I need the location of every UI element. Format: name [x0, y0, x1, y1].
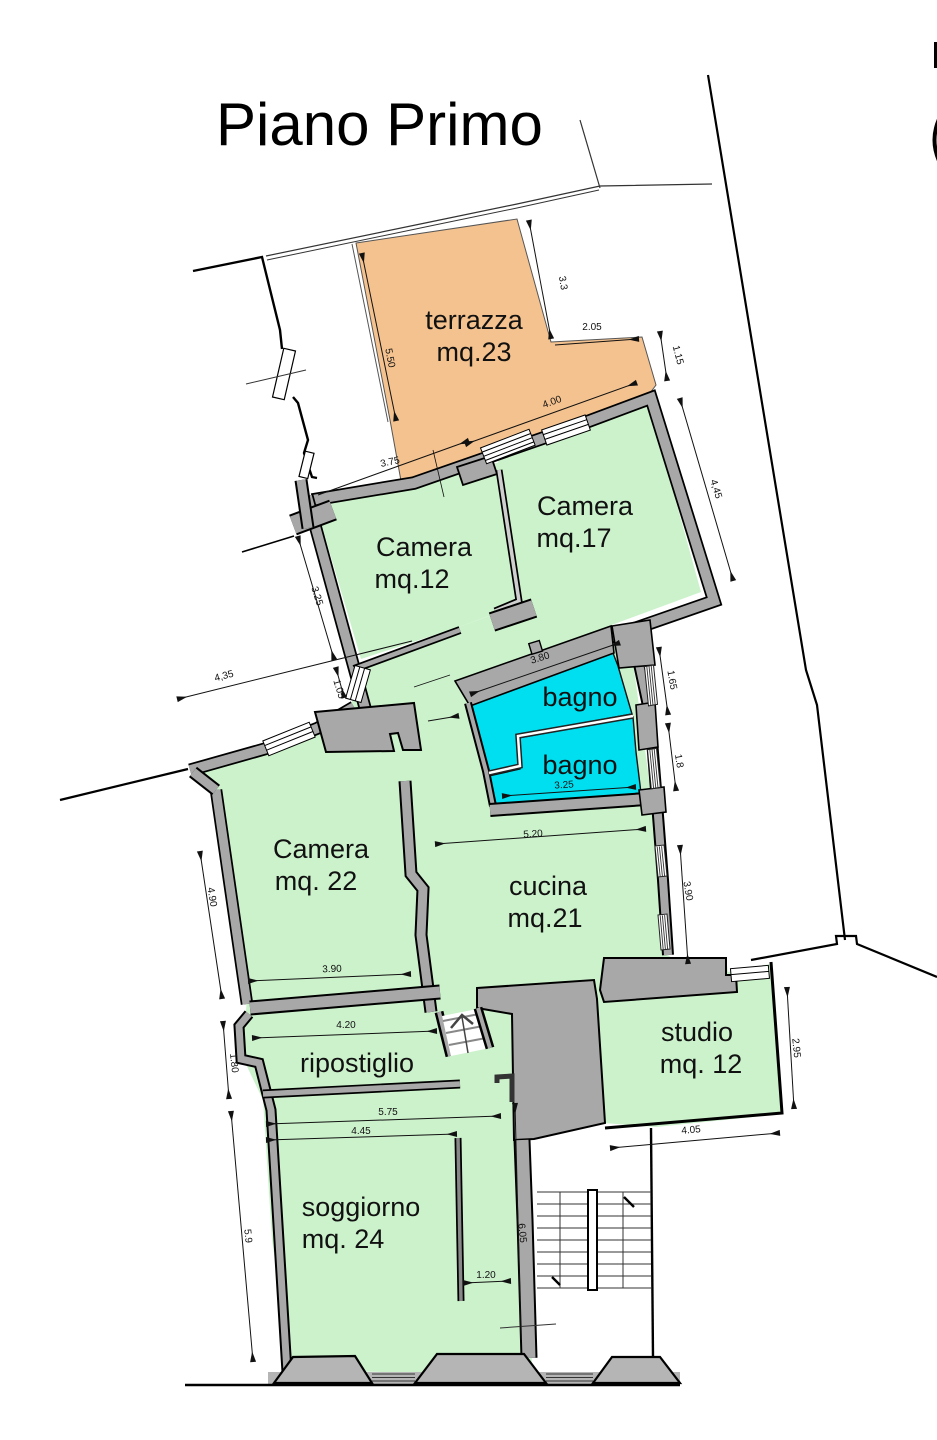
svg-text:mq.21: mq.21 — [507, 903, 582, 933]
svg-text:5.20: 5.20 — [523, 828, 544, 840]
svg-text:Camera: Camera — [537, 491, 634, 521]
svg-text:mq.17: mq.17 — [536, 523, 611, 553]
svg-text:mq. 24: mq. 24 — [302, 1224, 385, 1254]
svg-text:2.95: 2.95 — [789, 1038, 802, 1059]
svg-text:mq.23: mq.23 — [436, 337, 511, 367]
svg-text:5.75: 5.75 — [378, 1107, 398, 1118]
svg-text:3.25: 3.25 — [554, 779, 575, 791]
svg-text:cucina: cucina — [509, 871, 588, 901]
svg-text:6.05: 6.05 — [515, 1223, 528, 1244]
svg-text:mq.12: mq.12 — [374, 564, 449, 594]
svg-text:4.05: 4.05 — [681, 1124, 702, 1137]
svg-text:mq. 12: mq. 12 — [660, 1049, 743, 1079]
svg-text:Camera: Camera — [376, 532, 473, 562]
svg-text:1.20: 1.20 — [476, 1270, 496, 1281]
svg-text:1.80: 1.80 — [227, 1053, 240, 1074]
svg-text:Camera: Camera — [273, 834, 370, 864]
svg-text:bagno: bagno — [542, 682, 617, 712]
svg-text:ripostiglio: ripostiglio — [300, 1048, 414, 1078]
svg-text:soggiorno: soggiorno — [302, 1192, 421, 1222]
svg-text:terrazza: terrazza — [425, 305, 524, 335]
svg-text:bagno: bagno — [542, 750, 617, 780]
svg-text:studio: studio — [661, 1017, 733, 1047]
svg-text:2.05: 2.05 — [582, 322, 602, 333]
svg-text:5.9: 5.9 — [241, 1229, 253, 1244]
svg-text:Piano Primo: Piano Primo — [216, 91, 543, 158]
svg-text:4.45: 4.45 — [351, 1126, 371, 1137]
svg-text:mq. 22: mq. 22 — [275, 866, 358, 896]
svg-text:4.20: 4.20 — [336, 1020, 356, 1031]
svg-text:3.90: 3.90 — [322, 964, 342, 976]
